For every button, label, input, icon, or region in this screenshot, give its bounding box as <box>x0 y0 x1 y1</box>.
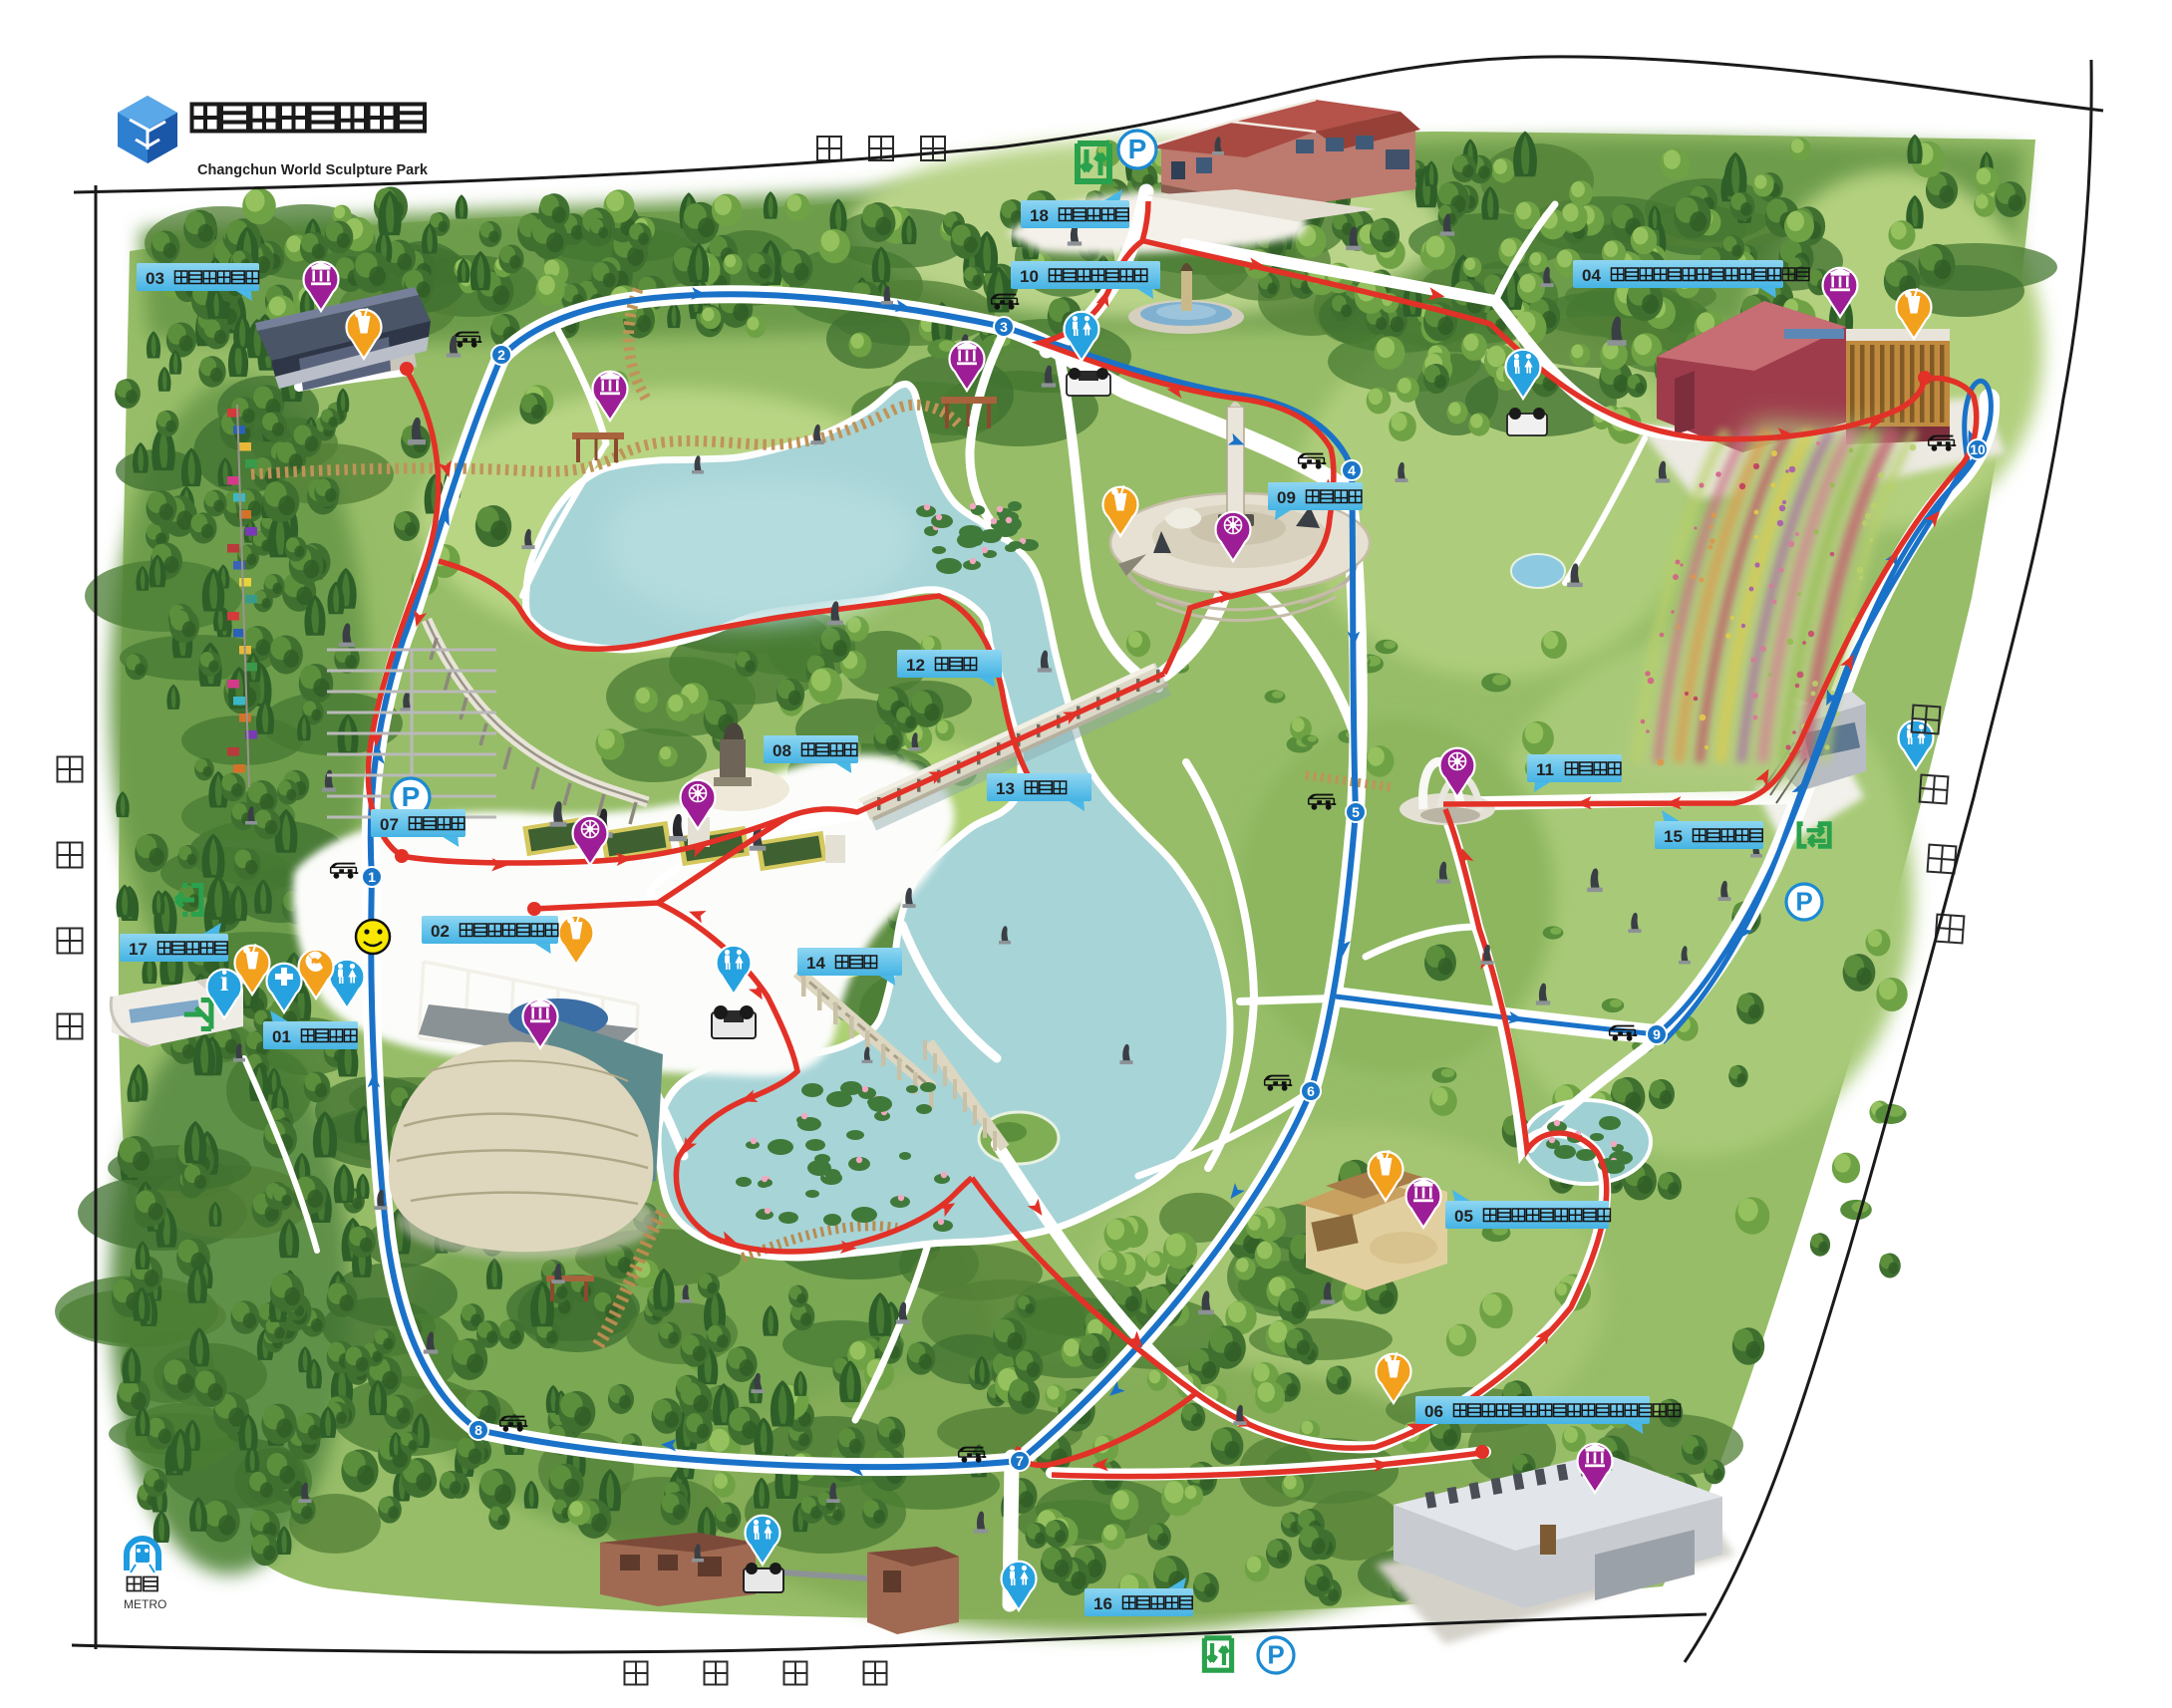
svg-text:7: 7 <box>1016 1453 1024 1469</box>
svg-text:13: 13 <box>996 779 1015 798</box>
svg-text:P: P <box>1128 134 1147 164</box>
svg-text:i: i <box>220 965 228 997</box>
svg-text:4: 4 <box>1348 462 1356 478</box>
svg-text:3: 3 <box>1000 319 1008 335</box>
svg-text:06: 06 <box>1424 1402 1443 1421</box>
svg-text:P: P <box>1795 887 1812 917</box>
svg-text:6: 6 <box>1307 1083 1315 1099</box>
svg-text:16: 16 <box>1093 1594 1112 1613</box>
svg-text:P: P <box>1267 1640 1284 1670</box>
svg-text:14: 14 <box>806 954 825 973</box>
svg-text:12: 12 <box>906 656 925 675</box>
svg-text:10: 10 <box>1970 441 1986 457</box>
svg-text:METRO: METRO <box>124 1597 166 1611</box>
svg-text:08: 08 <box>773 741 791 760</box>
svg-text:11: 11 <box>1536 760 1554 779</box>
svg-text:03: 03 <box>146 269 164 288</box>
svg-text:Changchun World Sculpture Park: Changchun World Sculpture Park <box>197 162 429 178</box>
svg-text:04: 04 <box>1582 266 1601 285</box>
svg-text:2: 2 <box>497 347 505 363</box>
svg-text:07: 07 <box>380 815 399 834</box>
svg-text:01: 01 <box>272 1027 291 1046</box>
svg-text:1: 1 <box>368 869 376 885</box>
svg-text:18: 18 <box>1030 206 1049 225</box>
svg-text:05: 05 <box>1454 1207 1473 1226</box>
svg-text:02: 02 <box>431 922 450 941</box>
svg-text:15: 15 <box>1664 827 1683 846</box>
svg-text:9: 9 <box>1653 1026 1661 1042</box>
svg-text:10: 10 <box>1020 267 1039 286</box>
svg-text:8: 8 <box>474 1422 482 1438</box>
svg-text:09: 09 <box>1277 488 1296 507</box>
svg-text:17: 17 <box>129 940 148 959</box>
svg-text:5: 5 <box>1352 804 1360 820</box>
svg-text:P: P <box>402 781 421 812</box>
